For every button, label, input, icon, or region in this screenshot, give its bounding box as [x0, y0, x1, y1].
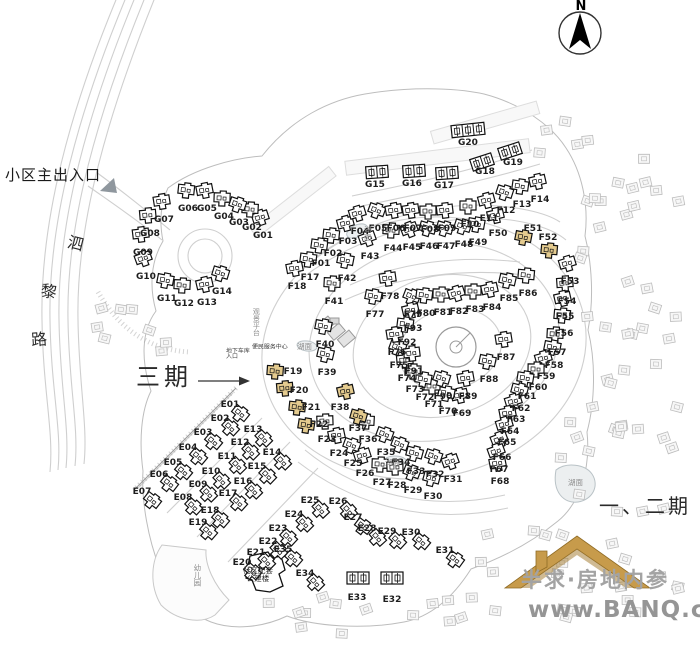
site-plan: G01G02G03G04G05G06G07G08G09G10G11G12G13G… — [0, 0, 700, 645]
context-house — [570, 431, 583, 443]
building-label-F41: F41 — [325, 297, 344, 307]
building-label-G05: G05 — [197, 204, 217, 214]
building-label-F91: F91 — [405, 367, 424, 377]
context-house — [604, 377, 617, 388]
building-F19 — [267, 363, 284, 379]
context-house — [663, 333, 675, 344]
building-label-F59: F59 — [537, 372, 556, 382]
building-label-F35: F35 — [377, 448, 396, 458]
building-label-E34: E34 — [296, 569, 315, 579]
building-label-F24: F24 — [330, 449, 349, 459]
building-label-G12: G12 — [174, 299, 194, 309]
context-house — [621, 276, 634, 288]
building-F12 — [495, 183, 515, 202]
building-label-E31: E31 — [436, 546, 455, 556]
building-F84 — [480, 280, 499, 298]
building-label-F33: F33 — [407, 467, 426, 477]
building-label-G09: G09 — [133, 248, 153, 258]
building-label-G14: G14 — [212, 287, 232, 297]
building-label-F08: F08 — [421, 225, 440, 235]
building-label-F50: F50 — [489, 229, 508, 239]
building-label-G08: G08 — [140, 229, 160, 239]
building-label-F67: F67 — [490, 465, 509, 475]
context-house — [622, 329, 634, 340]
context-house — [615, 422, 627, 432]
building-label-E12: E12 — [231, 438, 250, 448]
building-label-G18: G18 — [475, 167, 495, 177]
building-label-F73: F73 — [406, 385, 425, 395]
lake-label-4: 湖面 — [568, 478, 583, 487]
building-label-E15: E15 — [248, 462, 267, 472]
building-label-E05: E05 — [164, 458, 183, 468]
building-label-E14: E14 — [263, 448, 282, 458]
building-label-G10: G10 — [136, 272, 156, 282]
phase12-label: 一、二期 — [599, 496, 691, 516]
building-label-F26: F26 — [356, 469, 375, 479]
building-label-E13: E13 — [244, 425, 263, 435]
watermark-text: 半求·房地内参 — [521, 570, 669, 591]
building-label-G15: G15 — [365, 180, 385, 190]
building-label-F83: F83 — [466, 305, 485, 315]
context-house — [444, 616, 456, 626]
building-label-F85: F85 — [500, 294, 519, 304]
context-house — [648, 302, 661, 314]
building-label-F36: F36 — [359, 435, 378, 445]
building-label-F80: F80 — [417, 309, 436, 319]
building-label-E04: E04 — [179, 443, 198, 453]
context-house — [565, 418, 576, 427]
building-label-F37: F37 — [349, 424, 368, 434]
building-label-F92: F92 — [398, 338, 417, 348]
context-house — [556, 529, 569, 541]
context-house — [555, 453, 567, 463]
building-label-F09: F09 — [438, 224, 457, 234]
context-house — [541, 125, 553, 135]
context-house — [619, 553, 632, 565]
context-house — [115, 304, 127, 315]
context-house — [650, 185, 662, 195]
context-house — [612, 177, 625, 188]
building-label-G13: G13 — [197, 298, 217, 308]
building-label-F46: F46 — [420, 242, 439, 252]
building-label-G07: G07 — [154, 215, 174, 225]
building-label-E11: E11 — [218, 452, 237, 462]
building-label-E19: E19 — [189, 518, 208, 528]
lake-label-3: 湖面 — [385, 458, 400, 467]
building-label-F86: F86 — [519, 289, 538, 299]
context-house — [534, 148, 546, 158]
building-label-F02: F02 — [324, 249, 343, 259]
building-label-F89: F89 — [459, 392, 478, 402]
context-house — [316, 591, 329, 603]
building-label-F21: F21 — [302, 403, 321, 413]
building-label-G19: G19 — [503, 158, 523, 168]
context-house — [160, 338, 172, 348]
building-label-F52: F52 — [539, 233, 558, 243]
context-house — [573, 489, 585, 499]
phase3-label: 三期 — [136, 365, 192, 389]
context-house — [91, 322, 103, 333]
building-label-E06: E06 — [150, 470, 169, 480]
building-label-E03: E03 — [194, 428, 213, 438]
building-label-F90: F90 — [434, 392, 453, 402]
context-house — [586, 402, 598, 413]
building-label-G20: G20 — [458, 138, 478, 148]
building-G05 — [195, 182, 214, 200]
building-label-F47: F47 — [437, 242, 456, 252]
context-house — [606, 538, 619, 549]
building-label-E33: E33 — [348, 593, 367, 603]
context-house — [627, 200, 640, 211]
north-letter: N — [571, 0, 591, 13]
context-house — [466, 593, 477, 602]
building-label-F56: F56 — [555, 329, 574, 339]
building-label-F01: F01 — [312, 259, 331, 269]
building-G11 — [156, 272, 175, 290]
building-F32 — [423, 447, 443, 466]
building-G15 — [366, 165, 389, 179]
building-label-E29: E29 — [378, 527, 397, 537]
building-F82 — [447, 284, 467, 303]
building-label-F13: F13 — [513, 200, 532, 210]
context-house — [618, 365, 630, 375]
context-house — [665, 442, 678, 454]
building-E33 — [347, 572, 369, 584]
building-label-E10: E10 — [202, 467, 221, 477]
main-entrance-label: 小区主出入口 — [5, 168, 101, 183]
building-label-F06: F06 — [387, 224, 406, 234]
building-label-G04: G04 — [214, 212, 234, 222]
context-house — [330, 599, 342, 609]
building-label-F43: F43 — [361, 252, 380, 262]
building-label-F29: F29 — [404, 486, 423, 496]
building-label-E26: E26 — [329, 497, 348, 507]
building-label-G16: G16 — [402, 179, 422, 189]
building-label-F42: F42 — [338, 274, 357, 284]
building-label-F68: F68 — [491, 477, 510, 487]
building-label-E01: E01 — [221, 400, 240, 410]
building-label-F45: F45 — [403, 243, 422, 253]
building-label-F53: F53 — [561, 277, 580, 287]
context-house — [539, 529, 552, 541]
context-house — [489, 606, 501, 616]
context-house — [336, 629, 347, 639]
phase3-arrow-icon — [198, 377, 250, 386]
context-house — [475, 557, 486, 566]
building-label-G06: G06 — [178, 204, 198, 214]
kindergarten-area — [153, 545, 229, 620]
building-label-E27: E27 — [344, 513, 363, 523]
context-house — [641, 283, 654, 294]
building-label-F19: F19 — [284, 367, 303, 377]
context-house — [671, 401, 684, 412]
context-house — [581, 312, 593, 322]
building-G12 — [174, 278, 191, 294]
building-label-G17: G17 — [434, 181, 454, 191]
context-house — [672, 196, 684, 207]
building-F13 — [511, 178, 529, 195]
context-house — [481, 529, 494, 540]
context-house — [126, 304, 138, 314]
building-label-E09: E09 — [189, 480, 208, 490]
building-F31 — [440, 452, 460, 472]
entrance-arrow-icon — [100, 178, 117, 193]
building-label-F32: F32 — [426, 470, 445, 480]
context-house — [454, 612, 467, 624]
building-G06 — [177, 182, 194, 199]
building-label-F77: F77 — [366, 310, 385, 320]
building-label-F54: F54 — [558, 297, 577, 307]
building-label-F25: F25 — [344, 459, 363, 469]
building-G07 — [153, 193, 171, 210]
building-label-F58: F58 — [545, 361, 564, 371]
building-F88 — [478, 353, 497, 371]
building-label-F23: F23 — [318, 435, 337, 445]
building-label-E30: E30 — [402, 528, 421, 538]
building-label-F38: F38 — [331, 403, 350, 413]
building-F05 — [366, 201, 386, 221]
building-F11 — [477, 191, 496, 210]
building-F87 — [495, 331, 513, 348]
context-house — [295, 622, 307, 632]
building-label-E23: E23 — [269, 524, 288, 534]
lake-label-1: 湖面 — [364, 225, 372, 242]
building-label-F61: F61 — [518, 392, 537, 402]
context-house — [593, 222, 606, 233]
building-label-F78: F78 — [381, 292, 400, 302]
building-label-F44: F44 — [384, 244, 403, 254]
building-label-E08: E08 — [174, 493, 193, 503]
building-F81 — [433, 287, 449, 302]
building-label-F18: F18 — [288, 282, 307, 292]
building-label-F11: F11 — [480, 214, 499, 224]
service-center-label: 便民服务中心 — [252, 344, 288, 350]
building-label-F22: F22 — [310, 420, 329, 430]
underground-garage-label: 地下车库 入口 — [226, 348, 250, 360]
building-label-F84: F84 — [483, 303, 502, 313]
building-label-E07: E07 — [133, 487, 152, 497]
context-house — [582, 446, 595, 457]
community-facility-label: 社区配套 公建楼 — [243, 567, 273, 583]
road-name-char-2: 黎 — [40, 277, 58, 303]
context-house — [98, 333, 111, 344]
context-house — [559, 116, 571, 127]
context-house — [263, 598, 274, 607]
building-label-E35: E35 — [274, 545, 293, 555]
context-house — [650, 359, 661, 368]
context-house — [599, 322, 611, 332]
building-label-F30: F30 — [424, 492, 443, 502]
building-label-E25: E25 — [301, 496, 320, 506]
lake-label-2: 湖面 — [297, 342, 312, 351]
context-house — [427, 598, 439, 608]
building-label-F87: F87 — [497, 353, 516, 363]
context-house — [670, 312, 681, 321]
building-label-F93: F93 — [404, 324, 423, 334]
context-house — [359, 603, 372, 615]
building-label-E28: E28 — [358, 524, 377, 534]
building-F52 — [541, 242, 558, 258]
context-house — [487, 567, 499, 577]
north-arrow-icon — [559, 12, 601, 54]
building-label-E18: E18 — [201, 506, 220, 516]
kindergarten-label: 幼儿园 — [193, 564, 201, 587]
building-label-F66: F66 — [493, 453, 512, 463]
watermark-url: www.BANQ.cn — [528, 599, 700, 622]
building-label-F63: F63 — [507, 415, 526, 425]
context-house — [442, 596, 454, 606]
building-label-E02: E02 — [211, 414, 230, 424]
building-F07 — [402, 202, 420, 219]
road-name-char-3: 路 — [30, 325, 48, 350]
building-label-F31: F31 — [444, 475, 463, 485]
building-G14 — [211, 264, 231, 283]
building-label-E17: E17 — [219, 489, 238, 499]
context-house — [589, 194, 600, 203]
building-label-F55: F55 — [556, 312, 575, 322]
context-house — [407, 610, 418, 619]
building-label-F39: F39 — [318, 368, 337, 378]
building-label-F57: F57 — [548, 348, 567, 358]
building-label-E24: E24 — [285, 510, 304, 520]
context-house — [582, 135, 594, 145]
building-label-F65: F65 — [498, 438, 517, 448]
context-house — [657, 432, 670, 444]
context-house — [143, 324, 156, 336]
site-plan-basemap: G01G02G03G04G05G06G07G08G09G10G11G12G13G… — [0, 0, 700, 645]
building-label-F20: F20 — [290, 386, 309, 396]
context-house — [95, 302, 108, 313]
building-label-F76: F76 — [388, 348, 407, 358]
building-G16 — [403, 164, 426, 178]
building-F10 — [460, 199, 476, 214]
building-F83 — [465, 284, 481, 299]
building-F53 — [558, 254, 578, 273]
building-F38 — [336, 382, 355, 400]
building-label-F03: F03 — [339, 237, 358, 247]
building-label-F62: F62 — [512, 404, 531, 414]
building-F89 — [457, 370, 475, 388]
building-F14 — [528, 172, 547, 190]
context-house — [528, 526, 540, 536]
building-E32 — [381, 572, 403, 584]
viewing-platform-label: 观景平台 — [252, 308, 259, 336]
building-label-F40: F40 — [316, 340, 335, 350]
context-house — [639, 154, 650, 163]
building-F86 — [518, 267, 535, 283]
building-label-F10: F10 — [461, 220, 480, 230]
building-label-E32: E32 — [383, 595, 402, 605]
building-label-E16: E16 — [234, 477, 253, 487]
building-label-F14: F14 — [531, 195, 550, 205]
context-house — [632, 424, 644, 434]
building-label-F88: F88 — [480, 375, 499, 385]
building-G17 — [436, 166, 459, 180]
context-house — [626, 182, 639, 193]
context-house — [571, 139, 583, 150]
building-label-F07: F07 — [404, 224, 423, 234]
building-label-F49: F49 — [469, 238, 488, 248]
building-label-E21: E21 — [247, 548, 266, 558]
building-label-F64: F64 — [501, 427, 520, 437]
